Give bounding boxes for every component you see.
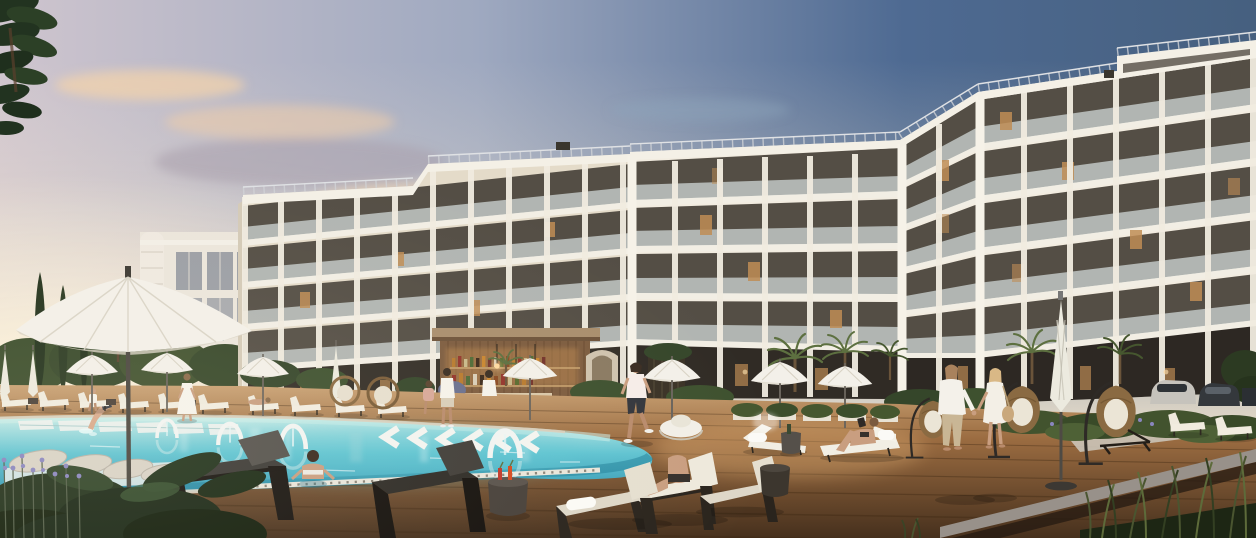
scene-canvas bbox=[0, 0, 1256, 538]
resort-rendering bbox=[0, 0, 1256, 538]
warm-light-overlay bbox=[0, 0, 1256, 538]
